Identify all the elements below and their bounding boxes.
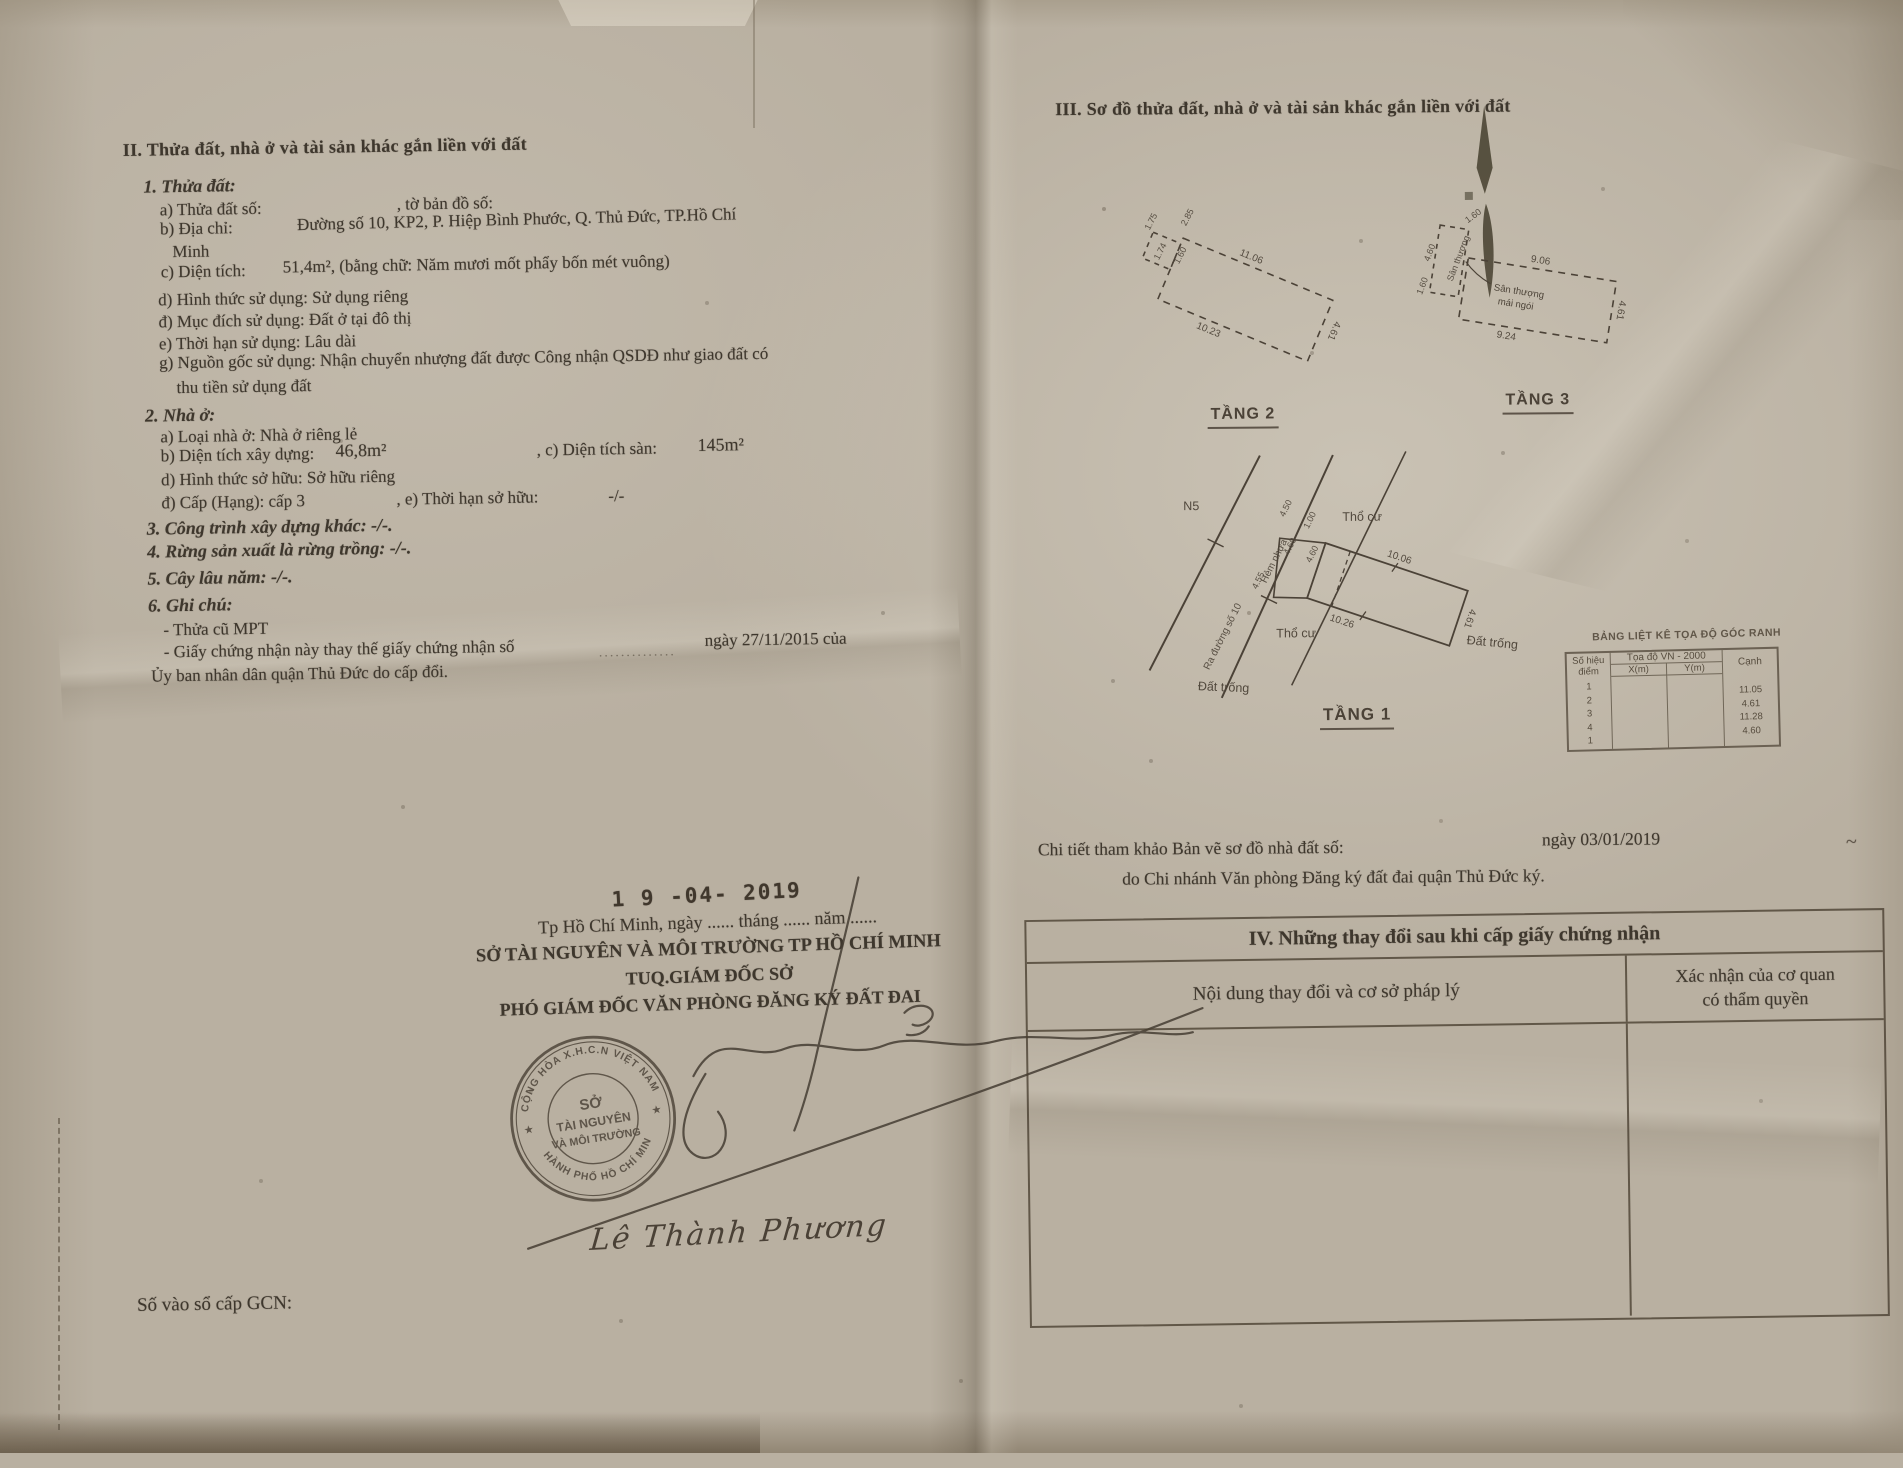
floor2-dim-top: 11.06 bbox=[1238, 247, 1265, 267]
floor2-dim-e1: 2.85 bbox=[1179, 207, 1196, 227]
floor2-plan: 11.06 10.23 4.61 2.85 1.75 1.74 1.60 bbox=[1113, 194, 1361, 382]
floor3-dim-top: 9.06 bbox=[1530, 254, 1551, 268]
floor1-zone-thocu-top: Thổ cư bbox=[1342, 510, 1382, 524]
north-arrow-icon bbox=[1464, 106, 1494, 298]
paper-speckles bbox=[0, 0, 2, 2]
floor1-zone-dattrong-right: Đất trống bbox=[1466, 633, 1519, 652]
drawing-reference-line: Chi tiết tham khảo Bản vẽ sơ đồ nhà đất … bbox=[1038, 837, 1344, 860]
floor1-dim-bottom: 10.26 bbox=[1328, 613, 1356, 632]
coord-edge-values: 11.05 4.61 11.28 4.60 bbox=[1723, 673, 1779, 746]
changes-after-issuance-table: IV. Những thay đổi sau khi cấp giấy chứn… bbox=[1024, 908, 1890, 1328]
page-right: III. Sơ đồ thửa đất, nhà ở và tài sản kh… bbox=[0, 0, 1903, 1460]
coord-y-values bbox=[1667, 674, 1725, 747]
floor2-dim-e3: 1.74 bbox=[1152, 241, 1169, 261]
floor3-strip-width: 4.60 bbox=[1422, 243, 1438, 263]
boundary-coordinates-table: BẢNG LIỆT KÊ TỌA ĐỘ GÓC RANH Số hiệuđiểm… bbox=[1565, 647, 1781, 752]
floor1-dim-right: 4.61 bbox=[1461, 608, 1478, 630]
handwritten-tick: ~ bbox=[1846, 831, 1857, 854]
changes-body-content-cell bbox=[1028, 1024, 1632, 1324]
floor1-dim-3: 4.60 bbox=[1304, 544, 1321, 564]
coord-x-values bbox=[1611, 675, 1669, 748]
floor3-plan: 9.06 9.24 4.61 Sân thượng 4.60 1.60 1.60… bbox=[1409, 199, 1638, 360]
floor2-dim-e4: 1.60 bbox=[1172, 245, 1189, 265]
changes-col-confirm-header: Xác nhận của cơ quan có thẩm quyền bbox=[1627, 952, 1884, 1022]
floor3-label: TẦNG 3 bbox=[1502, 391, 1573, 415]
floor2-dim-bottom: 10.23 bbox=[1195, 320, 1223, 340]
floor2-dim-right: 4.61 bbox=[1325, 320, 1343, 343]
floor1-n5-label: N5 bbox=[1183, 499, 1199, 513]
coord-col-point: Số hiệuđiểm bbox=[1567, 653, 1612, 678]
floor2-label: TẦNG 2 bbox=[1207, 405, 1278, 429]
floor1-roads bbox=[1148, 451, 1408, 698]
floor3-dim-bottom: 9.24 bbox=[1496, 329, 1517, 343]
floor3-dim-right: 4.61 bbox=[1613, 300, 1627, 321]
floor1-zone-dattrong-bottom: Đất trống bbox=[1198, 679, 1250, 695]
drawing-reference-date: ngày 03/01/2019 bbox=[1542, 828, 1660, 850]
coord-col-edge: Cạnh bbox=[1723, 649, 1778, 674]
floor2-dim-e2: 1.75 bbox=[1142, 211, 1159, 231]
drawing-reference-signer: do Chi nhánh Văn phòng Đăng ký đất đai q… bbox=[1122, 865, 1545, 889]
floor1-plan: 10.06 10.26 4.61 bbox=[1259, 515, 1488, 667]
coord-point-numbers: 1 2 3 4 1 bbox=[1567, 677, 1613, 750]
floor1-dim-1: 4.50 bbox=[1277, 498, 1294, 518]
floor3-dim-t2: 1.60 bbox=[1414, 276, 1430, 296]
changes-body-confirm-cell bbox=[1628, 1020, 1888, 1316]
floor3-strip-label: Sân thượng bbox=[1445, 234, 1472, 282]
floor1-dim-4: 1.00 bbox=[1301, 510, 1318, 530]
changes-col-content-header: Nội dung thay đổi và cơ sở pháp lý bbox=[1027, 956, 1628, 1030]
floor3-dim-t1: 1.60 bbox=[1463, 207, 1483, 225]
floor1-zone-thocu-bottom: Thổ cư bbox=[1276, 626, 1316, 640]
floor1-label: TẦNG 1 bbox=[1320, 705, 1395, 731]
